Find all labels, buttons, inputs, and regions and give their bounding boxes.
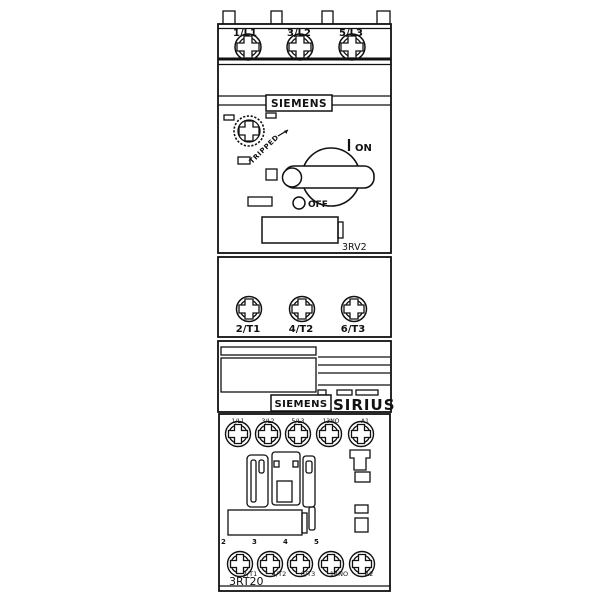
contactor-top-screws	[226, 422, 374, 447]
breaker-brand-text: SIEMENS	[271, 98, 327, 110]
screw-terminal-6T3	[342, 297, 367, 322]
contactor-top-label-1: 1/L1	[232, 418, 245, 425]
contactor-bottom-label-5: A2	[365, 570, 374, 578]
screw-contactor-3L2	[256, 422, 281, 447]
contactor-top-label-2: 3/L2	[262, 418, 275, 425]
screw-terminal-4T2	[290, 297, 315, 322]
screw-contactor-5L3	[286, 422, 311, 447]
contactor-marker-4: 5	[314, 538, 319, 546]
off-label: OFF	[308, 200, 328, 210]
load-terminal-label-2: 4/T2	[289, 324, 313, 335]
sirius-series-label: SIRIUS	[333, 396, 396, 414]
load-terminal-label-1: 2/T1	[236, 324, 260, 335]
screw-terminal-2T1	[237, 297, 262, 322]
line-terminal-label-1: 1/L1	[233, 28, 257, 39]
line-terminal-label-3: 5/L3	[339, 28, 363, 39]
contactor-marker-3: 4	[283, 538, 288, 546]
screw-contactor-A1	[349, 422, 374, 447]
current-adjustment-dial	[234, 116, 264, 146]
siemens-starter-drawing: 1/L1 3/L2 5/L3 SIEMENS TRIPPED ON OFF 3R…	[0, 0, 600, 600]
contactor-top-label-4: 13NO	[323, 418, 340, 425]
contactor-body	[219, 414, 390, 591]
screw-contactor-13NO	[317, 422, 342, 447]
line-art: 1/L1 3/L2 5/L3 SIEMENS TRIPPED ON OFF 3R…	[0, 0, 600, 600]
contactor-marker-2: 3	[252, 538, 257, 546]
contactor-model-label: 3RT20	[229, 575, 264, 588]
handle-pivot	[283, 168, 302, 187]
contactor-marker-1: 2	[221, 538, 226, 546]
line-terminal-label-2: 3/L2	[287, 28, 311, 39]
load-terminal-label-3: 6/T3	[341, 324, 365, 335]
on-label: ON	[355, 143, 372, 154]
contactor-top-label-5: A1	[361, 418, 369, 425]
contactor-bottom-label-4: 14NO	[330, 570, 348, 578]
breaker-model-label: 3RV2	[342, 242, 367, 253]
contactor-top-label-3: 5/L3	[292, 418, 305, 425]
contactor-brand-text: SIEMENS	[275, 399, 328, 410]
screw-contactor-1L1	[226, 422, 251, 447]
contactor-bottom-label-2: 4/T2	[272, 570, 286, 578]
mounting-tabs	[223, 11, 390, 25]
contactor-bottom-label-3: 6/T3	[301, 570, 315, 578]
